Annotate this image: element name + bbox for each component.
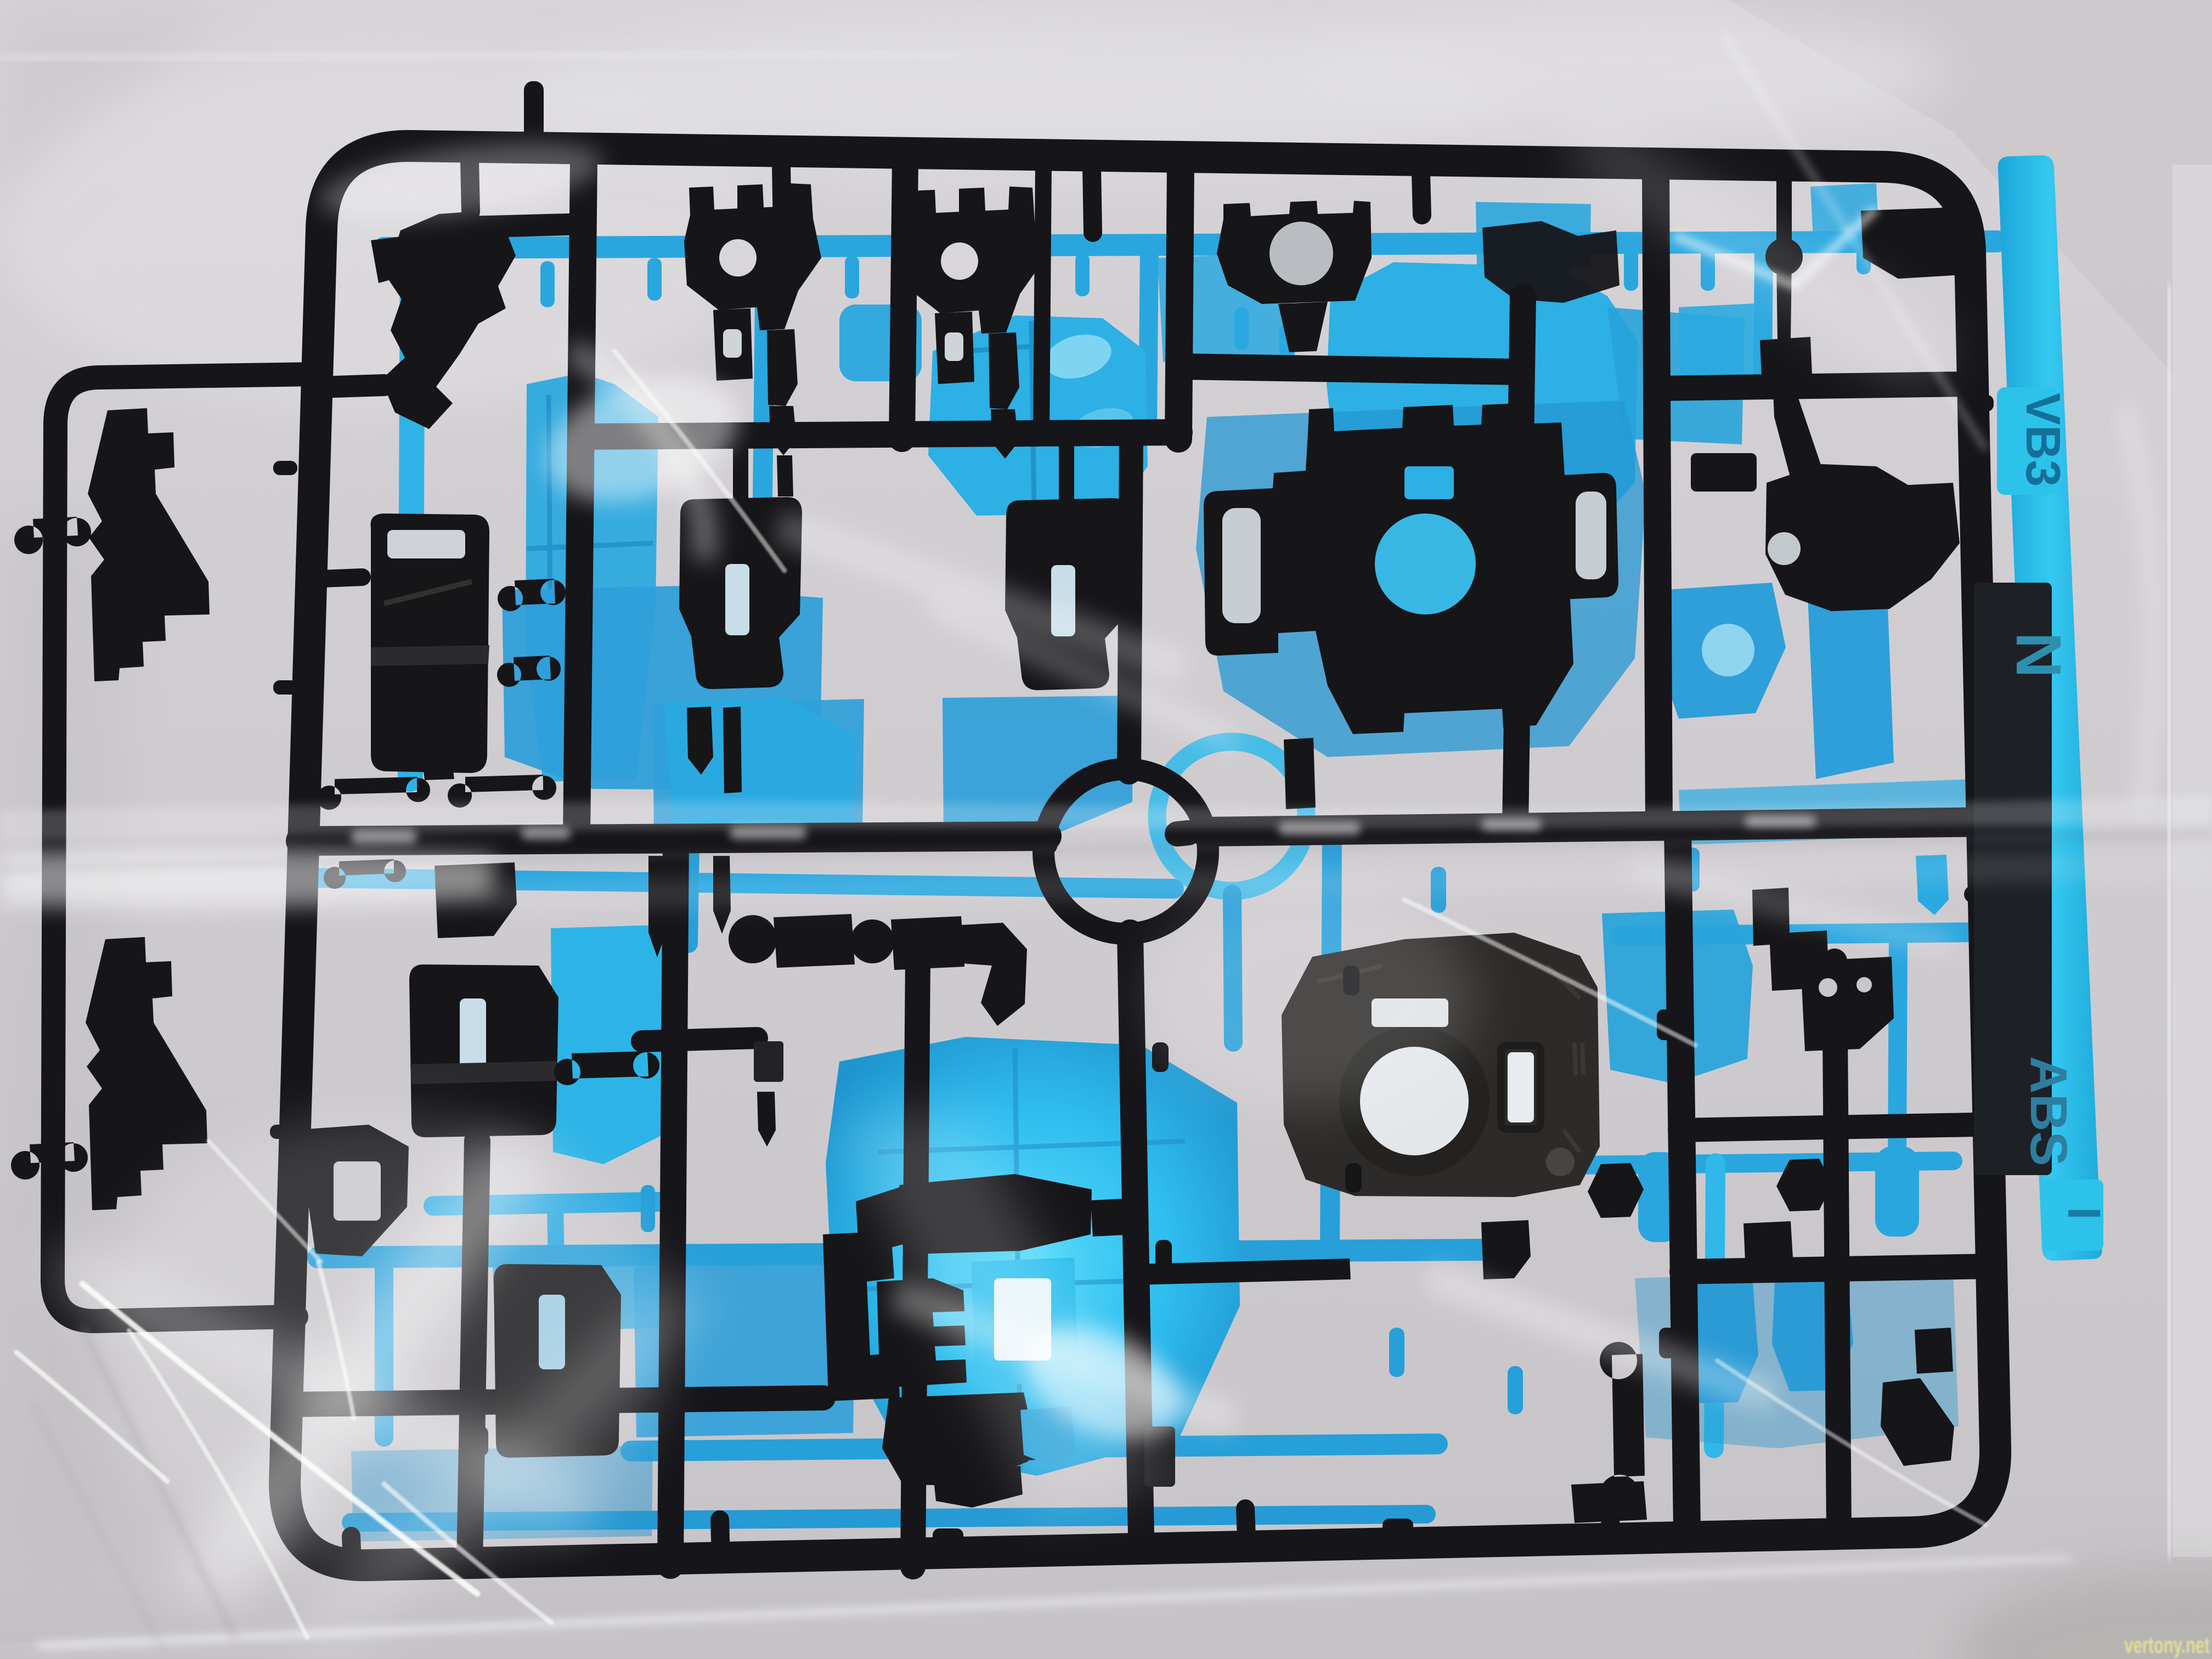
svg-text:VB3: VB3 [2016, 393, 2070, 487]
svg-text:vertony.net: vertony.net [2124, 1632, 2210, 1658]
svg-text:N: N [2003, 632, 2074, 678]
svg-text:I: I [2058, 1207, 2110, 1220]
svg-text:ABS: ABS [2019, 1056, 2078, 1166]
